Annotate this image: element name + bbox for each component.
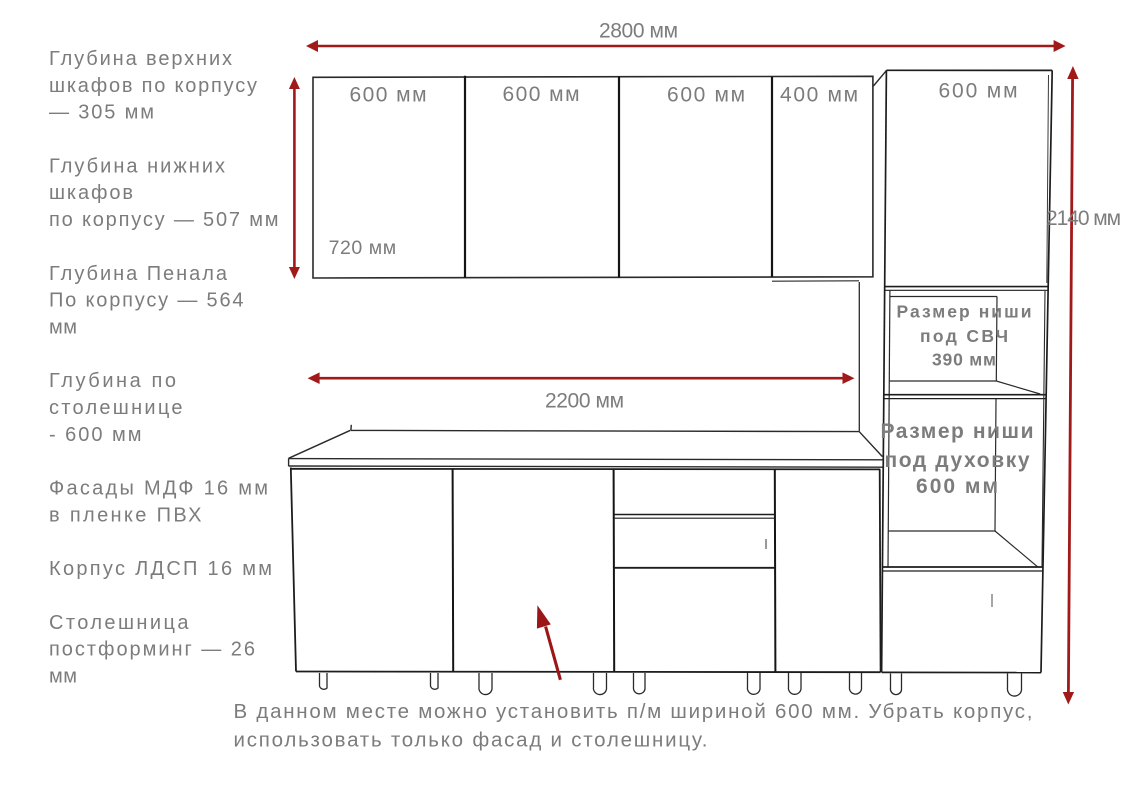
- svg-text:Столешница: Столешница: [49, 612, 189, 634]
- svg-text:шкафов: шкафов: [49, 182, 133, 204]
- svg-text:мм: мм: [49, 317, 77, 339]
- svg-text:600 мм: 600 мм: [503, 83, 580, 106]
- svg-text:по корпусу — 507 мм: по корпусу — 507 мм: [49, 209, 279, 231]
- svg-text:Фасады МДФ 16 мм: Фасады МДФ 16 мм: [49, 478, 268, 500]
- svg-text:Размер ниши: Размер ниши: [897, 302, 1032, 322]
- svg-text:600 мм: 600 мм: [350, 84, 427, 107]
- svg-text:- 600 мм: - 600 мм: [49, 424, 142, 446]
- svg-text:— 305 мм: — 305 мм: [49, 102, 154, 124]
- svg-text:2800 мм: 2800 мм: [599, 20, 678, 43]
- svg-text:столешнице: столешнице: [49, 397, 183, 419]
- svg-text:Глубина нижних: Глубина нижних: [49, 155, 225, 177]
- svg-text:в пленке ПВХ: в пленке ПВХ: [49, 504, 202, 526]
- svg-text:мм: мм: [49, 666, 77, 688]
- svg-text:Корпус ЛДСП 16 мм: Корпус ЛДСП 16 мм: [49, 558, 272, 580]
- svg-text:2140 мм: 2140 мм: [1046, 207, 1121, 230]
- svg-text:720 мм: 720 мм: [329, 237, 397, 259]
- svg-text:2200 мм: 2200 мм: [545, 390, 624, 413]
- svg-text:постформинг — 26: постформинг — 26: [49, 639, 255, 661]
- svg-text:В данном месте можно установит: В данном месте можно установить п/м шири…: [234, 700, 1033, 723]
- svg-text:Глубина по: Глубина по: [49, 370, 176, 392]
- svg-text:использовать только фасад и ст: использовать только фасад и столешницу.: [234, 729, 708, 752]
- svg-text:По корпусу — 564: По корпусу — 564: [49, 290, 244, 312]
- svg-text:под СВЧ: под СВЧ: [920, 326, 1008, 346]
- svg-text:Глубина верхних: Глубина верхних: [49, 48, 232, 70]
- svg-text:390 мм: 390 мм: [932, 349, 996, 369]
- svg-text:Размер ниши: Размер ниши: [881, 420, 1034, 443]
- svg-text:под духовку: под духовку: [885, 449, 1030, 472]
